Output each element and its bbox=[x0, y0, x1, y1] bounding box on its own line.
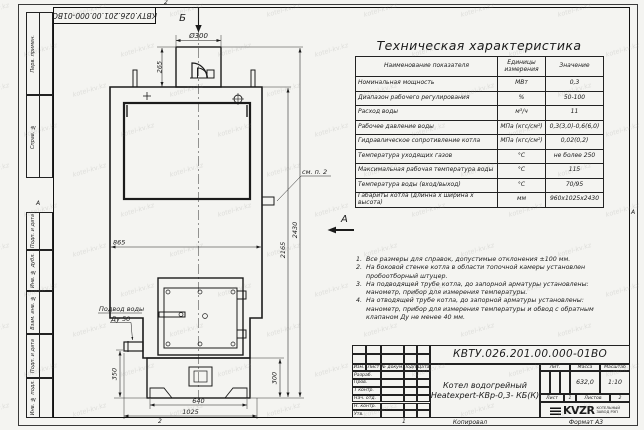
elbow-pipe-inner bbox=[198, 68, 208, 78]
tb-sheet-value: 1 bbox=[564, 394, 576, 402]
spec-unit: м³/ч bbox=[498, 106, 546, 121]
boiler-body bbox=[110, 87, 262, 358]
dim-height-total: 2430 bbox=[291, 222, 299, 239]
spec-table-title: Техническая характеристика bbox=[355, 38, 603, 53]
furnace-door-inner bbox=[164, 288, 237, 348]
dim-flue-diameter: Ø300 bbox=[188, 32, 208, 40]
lifting-lug-right bbox=[251, 70, 255, 87]
dim-inlet-height: 350 bbox=[111, 368, 119, 380]
sampling-nozzle bbox=[262, 197, 274, 205]
kvzr-logo-text: KVZR bbox=[563, 404, 594, 417]
watermark-text: kotel-kv.kz bbox=[0, 1, 10, 19]
spec-table: Наименование показателя Единицы измерени… bbox=[355, 56, 604, 208]
dim-height-body: 2165 bbox=[279, 242, 287, 259]
see-note-label: см. п. 2 bbox=[302, 168, 327, 176]
door-hinge-bottom bbox=[237, 330, 246, 338]
spec-value: 115 bbox=[546, 164, 604, 179]
spec-name: Температура воды (вход/выход) bbox=[356, 178, 498, 193]
spec-row: Диапазон рабочего регулирования%50-100 bbox=[356, 91, 604, 106]
stamp-sprav-no: Справ. № bbox=[26, 95, 53, 178]
zone-letter-right: А bbox=[631, 209, 635, 216]
spec-unit: МПа (кгс/см²) bbox=[498, 120, 546, 135]
dim-body-width: 865 bbox=[113, 239, 125, 247]
tb-header-list: Лист bbox=[366, 364, 381, 372]
watermark-text: kotel-kv.kz bbox=[0, 161, 10, 179]
dim-flue-height: 265 bbox=[156, 61, 164, 73]
tb-header-dokum: № докум. bbox=[381, 364, 404, 372]
spec-unit: мм bbox=[498, 193, 546, 208]
spec-value: не более 250 bbox=[546, 149, 604, 164]
spec-name: Номинальная мощность bbox=[356, 77, 498, 92]
tb-header-izm: Изм. bbox=[352, 364, 366, 372]
boiler-front-view: Б А Ø300 265 865 350 300 2165 2430 640 1… bbox=[55, 0, 357, 425]
tb-row-razrab: Разраб. bbox=[352, 371, 381, 379]
ash-opening bbox=[189, 367, 212, 386]
spec-row: Гидравлическое сопротивление котлаМПа (к… bbox=[356, 135, 604, 150]
note-item: 3.На подводящей трубе котла, до запорной… bbox=[352, 281, 618, 298]
stamp-podp-data-2: Подп. и дата bbox=[26, 334, 53, 378]
spec-unit: °С bbox=[498, 164, 546, 179]
spec-unit: МПа (кгс/см²) bbox=[498, 135, 546, 150]
extension-lines bbox=[114, 35, 304, 419]
water-inlet-label-1: Подвод воды bbox=[99, 305, 144, 313]
stamp-inv-dubl: Инв. № дубл. bbox=[26, 250, 53, 291]
tb-sheet-label: Лист bbox=[540, 394, 564, 402]
door-hinge-top bbox=[237, 291, 246, 299]
tb-sheets-value: 2 bbox=[610, 394, 630, 402]
zone-number-bottom-right: 1 bbox=[402, 418, 406, 425]
spec-row: Температура уходящих газов°Сне более 250 bbox=[356, 149, 604, 164]
view-b-label: Б bbox=[179, 13, 186, 24]
spec-value: 70/95 bbox=[546, 178, 604, 193]
spec-row: Габариты котла (длинна х ширина х высота… bbox=[356, 193, 604, 208]
spec-header-unit: Единицы измерения bbox=[498, 57, 546, 77]
tb-row-tkontr: Т контр. bbox=[352, 387, 381, 395]
spec-row: Рабочее давление водыМПа (кгс/см²)0,3(3,… bbox=[356, 120, 604, 135]
door-bolts bbox=[166, 290, 235, 346]
watermark-text: kotel-kv.kz bbox=[0, 81, 10, 99]
format-label: Формат А3 bbox=[555, 419, 617, 426]
spec-name: Габариты котла (длинна х ширина х высота… bbox=[356, 193, 498, 208]
watermark-text: kotel-kv.kz bbox=[0, 401, 10, 419]
elbow-flange bbox=[207, 70, 214, 78]
foot-right bbox=[225, 388, 247, 398]
title-block: Изм. Лист № докум. Подп. Дата Разраб. Пр… bbox=[352, 345, 630, 418]
water-inlet-label-2: Ду 50 bbox=[110, 315, 130, 323]
watermark-text: kotel-kv.kz bbox=[0, 321, 10, 339]
dimension-lines bbox=[111, 41, 300, 417]
kvzr-logo-icon bbox=[550, 406, 561, 415]
spec-unit: °С bbox=[498, 178, 546, 193]
spec-value: 0,02(0,2) bbox=[546, 135, 604, 150]
note-item: 2.На боковой стенке котла в области топо… bbox=[352, 264, 618, 281]
stamp-perv-primen: Перв. примен. bbox=[26, 12, 53, 95]
tb-mass-label: Масса bbox=[570, 364, 600, 372]
tb-scale-label: Масштаб bbox=[600, 364, 630, 372]
copied-label: Копировал bbox=[430, 419, 510, 426]
lifting-lug-left bbox=[133, 70, 137, 87]
spec-unit: °С bbox=[498, 149, 546, 164]
tb-header-podp: Подп. bbox=[404, 364, 417, 372]
see-note-leader bbox=[277, 176, 301, 201]
spec-value: 960х1025х2430 bbox=[546, 193, 604, 208]
spec-name: Рабочее давление воды bbox=[356, 120, 498, 135]
kvzr-logo-subtitle: КОТЕЛЬНЫЙ ЗАВОД РЭП bbox=[596, 406, 620, 414]
spec-row: Температура воды (вход/выход)°С70/95 bbox=[356, 178, 604, 193]
spec-name: Расход воды bbox=[356, 106, 498, 121]
notes-list: 1.Все размеры для справок, допустимые от… bbox=[352, 256, 618, 322]
spec-name: Гидравлическое сопротивление котла bbox=[356, 135, 498, 150]
spec-unit: МВт bbox=[498, 77, 546, 92]
spec-name: Температура уходящих газов bbox=[356, 149, 498, 164]
tb-row-nkontr: Н. контр. bbox=[352, 403, 381, 411]
tb-header-data: Дата bbox=[417, 364, 430, 372]
spec-value: 50-100 bbox=[546, 91, 604, 106]
spec-value: 0,3 bbox=[546, 77, 604, 92]
view-a-label: А bbox=[340, 214, 348, 225]
spec-header-value: Значение bbox=[546, 57, 604, 77]
view-a-arrowhead bbox=[328, 227, 337, 234]
spec-header-name: Наименование показателя bbox=[356, 57, 498, 77]
tb-mass-value: 632,0 bbox=[570, 371, 600, 394]
spec-header-row: Наименование показателя Единицы измерени… bbox=[356, 57, 604, 77]
tb-lit-label: Лит. bbox=[540, 364, 570, 372]
stamp-podp-data-1: Подп. и дата bbox=[26, 212, 53, 250]
zone-letter-left: А bbox=[36, 200, 40, 207]
dim-base-height: 300 bbox=[271, 372, 279, 384]
dim-base-width: 640 bbox=[192, 397, 204, 405]
dim-base-depth: 1025 bbox=[182, 408, 199, 416]
tb-scale-value: 1:10 bbox=[600, 371, 630, 394]
spec-value: 0,3(3,0)-0,6(6,0) bbox=[546, 120, 604, 135]
foot-left bbox=[150, 388, 172, 398]
stamp-vzam-inv: Взам. инв. № bbox=[26, 291, 53, 334]
drawing-sheet: КВТУ.026.201.00.000-01ВО Перв. примен. С… bbox=[0, 0, 644, 430]
tb-logo-cell: KVZR КОТЕЛЬНЫЙ ЗАВОД РЭП bbox=[540, 402, 630, 418]
tb-row-nachotd: Нач. отд. bbox=[352, 395, 381, 403]
spec-value: 11 bbox=[546, 106, 604, 121]
watermark-text: kotel-kv.kz bbox=[0, 241, 10, 259]
water-inlet-stub bbox=[124, 342, 143, 351]
stamp-inv-podl: Инв. № подл. bbox=[26, 378, 53, 418]
spec-name: Максимальная рабочая температура воды bbox=[356, 164, 498, 179]
water-inlet-leader bbox=[131, 323, 133, 341]
heat-exchanger-window bbox=[124, 103, 250, 199]
tb-row-prov: Пров. bbox=[352, 379, 381, 387]
spec-row: Максимальная рабочая температура воды°С1… bbox=[356, 164, 604, 179]
spec-row: Расход водым³/ч11 bbox=[356, 106, 604, 121]
tb-product-name: Котел водогрейный Heatexpert-КВр-0,3- КБ… bbox=[430, 364, 540, 418]
tb-doc-number: КВТУ.026.201.00.000-01ВО bbox=[430, 345, 630, 364]
tb-row-utv: Утв. bbox=[352, 410, 381, 418]
spec-name: Диапазон рабочего регулирования bbox=[356, 91, 498, 106]
spec-unit: % bbox=[498, 91, 546, 106]
spec-row: Номинальная мощностьМВт0,3 bbox=[356, 77, 604, 92]
note-item: 4.На отводящей трубе котла, до запорной … bbox=[352, 297, 618, 322]
tb-sheets-label: Листов bbox=[576, 394, 610, 402]
